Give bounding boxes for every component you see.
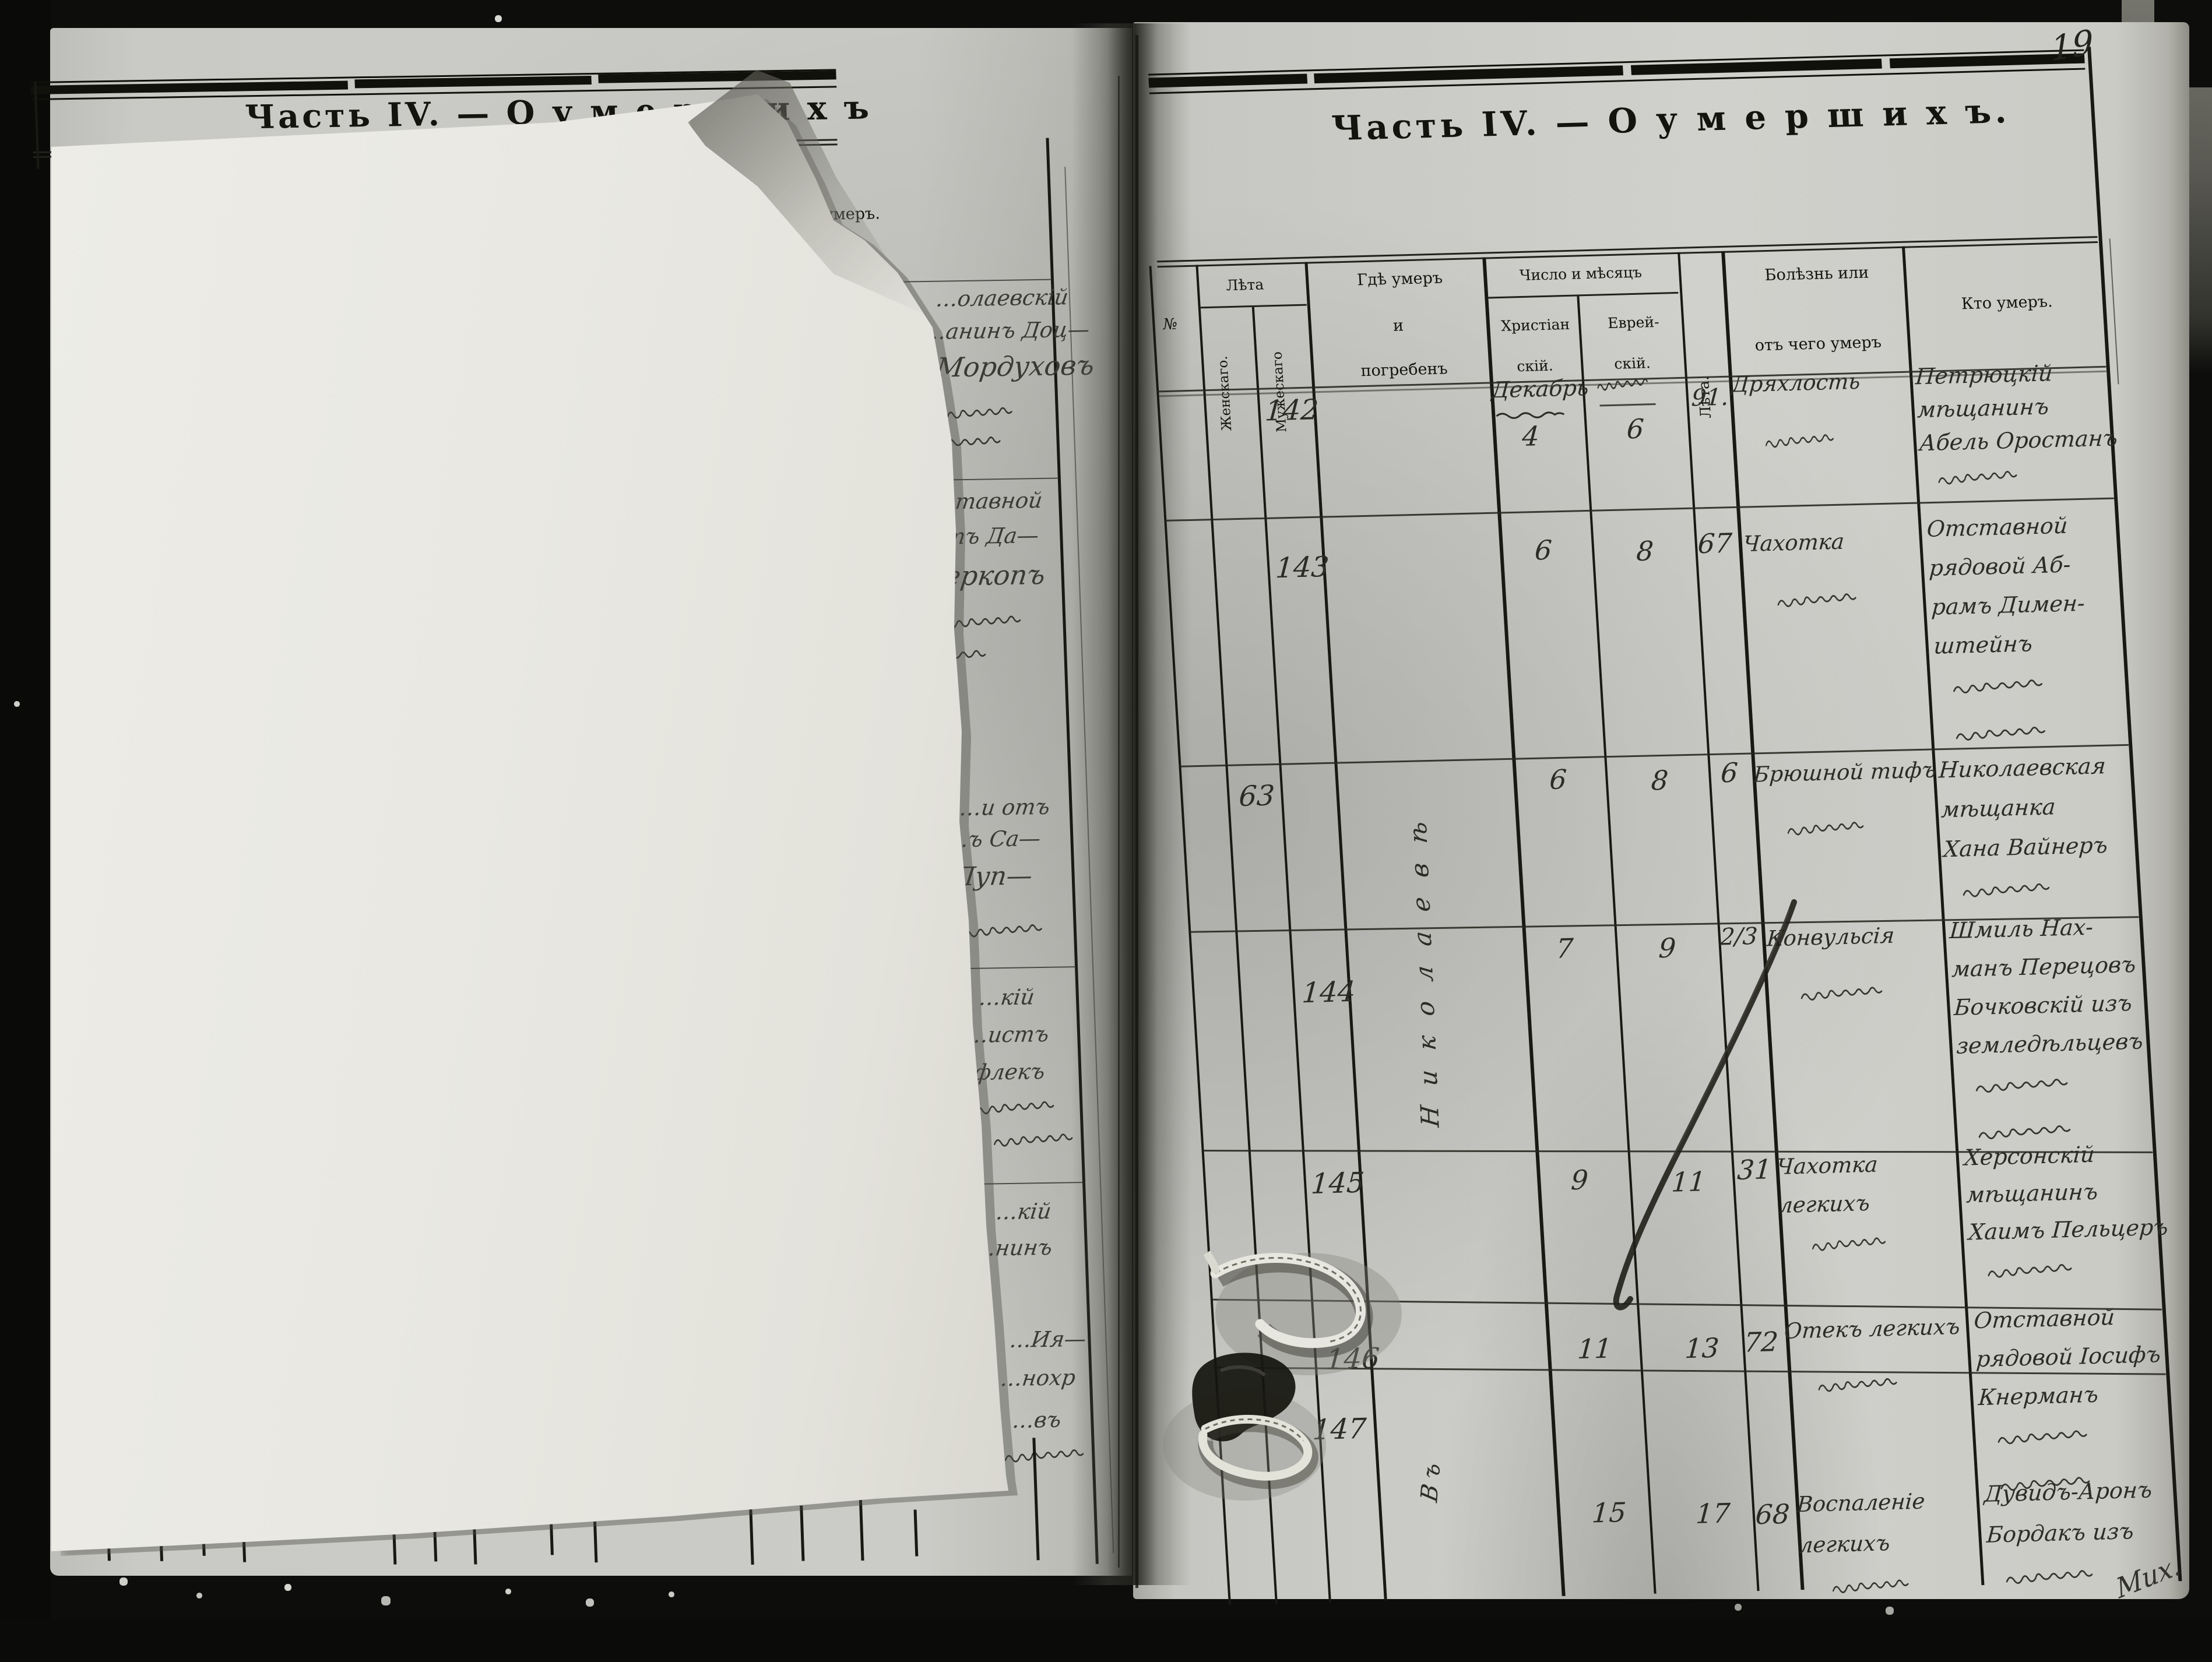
hebrew-script-line bbox=[1799, 986, 1890, 1005]
header-christian-line1: Христіан bbox=[1500, 316, 1570, 334]
hebrew-script-line bbox=[1954, 726, 2054, 744]
death-record-row-145-illness: легкихъ bbox=[1778, 1191, 1870, 1218]
col-line-christian-jewish bbox=[1577, 296, 1656, 1593]
death-record-row-143-who-hebrew bbox=[1951, 678, 2051, 697]
header-jewish-line2: скій. bbox=[1613, 354, 1651, 372]
header-no: № bbox=[1163, 315, 1178, 333]
death-record-row-145-deceased-description: Хаимъ Пельцеръ bbox=[1968, 1214, 2169, 1245]
death-record-row-146-age: 72 bbox=[1743, 1326, 1780, 1358]
death-record-row-143-deceased-description: рамъ Димен- bbox=[1930, 590, 2086, 620]
death-record-row-145-who-hebrew bbox=[1986, 1263, 2080, 1281]
death-record-row-147-jewish-day: 17 bbox=[1695, 1497, 1731, 1530]
death-record-row-142-christian-day: 4 bbox=[1521, 420, 1541, 452]
death-record-row-142-jewish-day: 6 bbox=[1626, 413, 1645, 445]
death-record-row-143-deceased-description: штейнъ bbox=[1933, 631, 2033, 659]
death-record-row-147-illness: легкихъ bbox=[1799, 1530, 1891, 1558]
death-record-row-144-jewish-day: 9 bbox=[1658, 932, 1677, 964]
death-record-row-146-deceased-description: рядовой Іосифъ bbox=[1975, 1341, 2161, 1372]
header-where-line2: и bbox=[1392, 316, 1404, 334]
death-record-row-146-deceased-description: Кнерманъ bbox=[1978, 1382, 2100, 1410]
death-record-row-147-illness-hebrew bbox=[1831, 1579, 1916, 1597]
death-record-row-142-deceased-description: Петрюцкій bbox=[1915, 360, 2053, 389]
death-record-row-144-who-hebrew bbox=[1977, 1124, 2080, 1143]
death-record-row-142-illness: Дряхлость bbox=[1731, 369, 1861, 397]
death-record-row-146-illness-hebrew bbox=[1816, 1377, 1905, 1396]
header-christian-line2: скій. bbox=[1517, 357, 1554, 375]
death-record-row-144-deceased-description: манъ Перецовъ bbox=[1951, 952, 2137, 982]
death-record-row-144-deceased-description: земледѣльцевъ bbox=[1956, 1028, 2144, 1058]
header-where-line1: Гдѣ умеръ bbox=[1356, 269, 1443, 290]
header-female: Женскаго. bbox=[1213, 314, 1235, 431]
header-illness-line1: Болѣзнь или bbox=[1764, 263, 1869, 284]
death-record-row-146-who-hebrew bbox=[1996, 1429, 2096, 1448]
header-years-group: Лѣта bbox=[1226, 276, 1264, 294]
hebrew-script-line bbox=[1986, 1263, 2080, 1281]
death-record-row-142-who-hebrew bbox=[1936, 470, 2025, 489]
death-record-row-143-age: 67 bbox=[1697, 527, 1733, 560]
death-record-row-143-illness: Чахотка bbox=[1743, 529, 1845, 557]
death-record-row-144-number-male: 144 bbox=[1301, 976, 1356, 1010]
hebrew-script-line bbox=[1775, 593, 1864, 611]
death-record-row-147-who-hebrew bbox=[2004, 1569, 2101, 1588]
hebrew-script-line bbox=[1764, 434, 1841, 452]
hebrew-script-line bbox=[1951, 678, 2051, 697]
right-header-bar-segment bbox=[1148, 73, 1307, 87]
death-record-row-147-christian-day: 15 bbox=[1591, 1496, 1627, 1529]
hebrew-script-line bbox=[1810, 1237, 1893, 1255]
where-buried-vertical-note: Николаевѣ bbox=[1402, 801, 1445, 1128]
death-record-row-147-number-male: 147 bbox=[1312, 1413, 1367, 1447]
death-record-row-147-deceased-description: Дувидъ-Аронъ bbox=[1984, 1477, 2153, 1507]
table-top-rule bbox=[1157, 236, 2098, 262]
death-record-row-147-deceased-description: Бордакъ изъ bbox=[1986, 1518, 2134, 1548]
hebrew-script-line bbox=[1996, 1429, 2096, 1448]
hebrew-script-line bbox=[1831, 1579, 1916, 1597]
death-record-row-143-who-hebrew bbox=[1954, 726, 2054, 744]
death-record-row-143-number-male: 143 bbox=[1275, 551, 1330, 585]
page-number: 19 bbox=[2050, 22, 2094, 69]
hebrew-script-line bbox=[1974, 1078, 2077, 1097]
death-record-row-63-age: 6 bbox=[1720, 756, 1739, 788]
death-record-row-63-who-hebrew bbox=[1961, 882, 2058, 901]
col-line-jewish-age bbox=[1678, 252, 1759, 1591]
death-record-row-146-jewish-day: 13 bbox=[1684, 1332, 1720, 1365]
header-date-group: Число и мѣсяцъ bbox=[1519, 264, 1642, 284]
hebrew-script-line bbox=[1961, 882, 2058, 901]
death-record-row-63-number-female: 63 bbox=[1238, 779, 1276, 813]
death-record-row-144-deceased-description: Бочковскій изъ bbox=[1953, 990, 2133, 1020]
death-record-row-146-number-male: 146 bbox=[1325, 1342, 1380, 1376]
death-record-row-144-illness-hebrew bbox=[1799, 986, 1890, 1005]
where-buried-vertical-note2: Въ bbox=[1416, 1455, 1446, 1505]
death-record-row-142-deceased-description: мѣщанинъ bbox=[1916, 393, 2049, 422]
jewish-month-hebrew bbox=[1596, 378, 1658, 395]
death-record-row-63-christian-day: 6 bbox=[1549, 763, 1568, 795]
death-record-row-142-age: 91. bbox=[1691, 384, 1730, 412]
header-where-line3: погребенъ bbox=[1360, 360, 1448, 380]
header-jewish-line1: Еврей- bbox=[1607, 314, 1659, 332]
death-record-row-63-deceased-description: Николаевская bbox=[1938, 753, 2107, 783]
death-record-row-143-illness-hebrew bbox=[1775, 593, 1864, 611]
header-illness-line2: отъ чего умеръ bbox=[1754, 333, 1882, 355]
death-record-row-143-deceased-description: Отставной bbox=[1926, 513, 2068, 542]
header-who: Кто умеръ. bbox=[1961, 293, 2053, 313]
death-record-row-63-illness: Брюшной тифъ bbox=[1753, 758, 1937, 787]
hebrew-script-line bbox=[2004, 1569, 2101, 1588]
hebrew-script-line bbox=[1936, 470, 2025, 489]
hebrew-script-line bbox=[1977, 1124, 2080, 1143]
death-record-row-145-illness-hebrew bbox=[1810, 1237, 1893, 1255]
death-record-row-143-christian-day: 6 bbox=[1534, 534, 1553, 566]
inspector-signature: Мих. bbox=[2113, 1548, 2183, 1605]
death-record-row-63-illness-hebrew bbox=[1785, 821, 1871, 840]
death-record-row-63-deceased-description: мѣщанка bbox=[1940, 794, 2056, 822]
death-record-row-146-illness: Отекъ легкихъ bbox=[1784, 1314, 1961, 1344]
death-record-row-142-illness-hebrew bbox=[1764, 434, 1841, 452]
death-record-row-146-christian-day: 11 bbox=[1577, 1332, 1613, 1365]
col-line-age-illness bbox=[1721, 251, 1804, 1590]
death-record-row-142-number-male: 142 bbox=[1264, 393, 1320, 428]
death-record-row-145-christian-day: 9 bbox=[1570, 1164, 1589, 1196]
hebrew-script-line bbox=[1785, 821, 1871, 840]
death-record-row-145-deceased-description: мѣщанинъ bbox=[1965, 1179, 2098, 1208]
dust-speckles bbox=[0, 0, 2, 2]
right-page-title: Часть IV. — О у м е р ш и х ъ. bbox=[1331, 91, 2011, 148]
death-record-row-144-who-hebrew bbox=[1974, 1078, 2077, 1097]
death-record-row-142-deceased-description: Абель Оростанъ bbox=[1919, 425, 2119, 456]
death-record-row-145-deceased-description: Херсонскій bbox=[1964, 1142, 2095, 1171]
death-record-row-145-age: 31 bbox=[1736, 1153, 1773, 1186]
death-record-row-146-deceased-description: Отставной bbox=[1973, 1304, 2115, 1333]
month-note: Декабрь bbox=[1490, 375, 1589, 403]
jewish-month-underline bbox=[1599, 403, 1655, 407]
death-record-row-147-illness: Воспаленіе bbox=[1796, 1489, 1926, 1517]
death-record-row-143-deceased-description: рядовой Аб- bbox=[1928, 551, 2072, 580]
hebrew-script-line bbox=[1816, 1377, 1905, 1396]
death-record-row-147-age: 68 bbox=[1754, 1498, 1791, 1531]
death-record-row-145-number-male: 145 bbox=[1310, 1166, 1365, 1200]
death-record-row-144-christian-day: 7 bbox=[1555, 932, 1574, 964]
death-record-row-144-deceased-description: Шмиль Нах- bbox=[1949, 914, 2094, 944]
scanned-register-photo: { "document": { "type": "metrical-book-d… bbox=[0, 0, 2212, 1619]
death-record-row-143-jewish-day: 8 bbox=[1636, 535, 1655, 567]
death-record-row-144-illness: Конвульсія bbox=[1766, 923, 1896, 952]
right-page-content: Часть IV. — О у м е р ш и х ъ. № Лѣта Же… bbox=[0, 0, 2212, 1662]
death-record-row-145-illness: Чахотка bbox=[1776, 1152, 1879, 1179]
death-record-row-63-jewish-day: 8 bbox=[1650, 765, 1669, 797]
date-underline bbox=[1488, 292, 1678, 299]
col-line-no bbox=[1195, 265, 1277, 1603]
death-record-row-63-deceased-description: Хана Вайнеръ bbox=[1943, 832, 2108, 862]
table-right-border-double bbox=[2109, 238, 2119, 384]
death-record-row-145-jewish-day: 11 bbox=[1671, 1165, 1707, 1198]
death-record-row-144-age: 2/3 bbox=[1719, 923, 1759, 951]
col-line-left-border bbox=[1149, 266, 1230, 1605]
